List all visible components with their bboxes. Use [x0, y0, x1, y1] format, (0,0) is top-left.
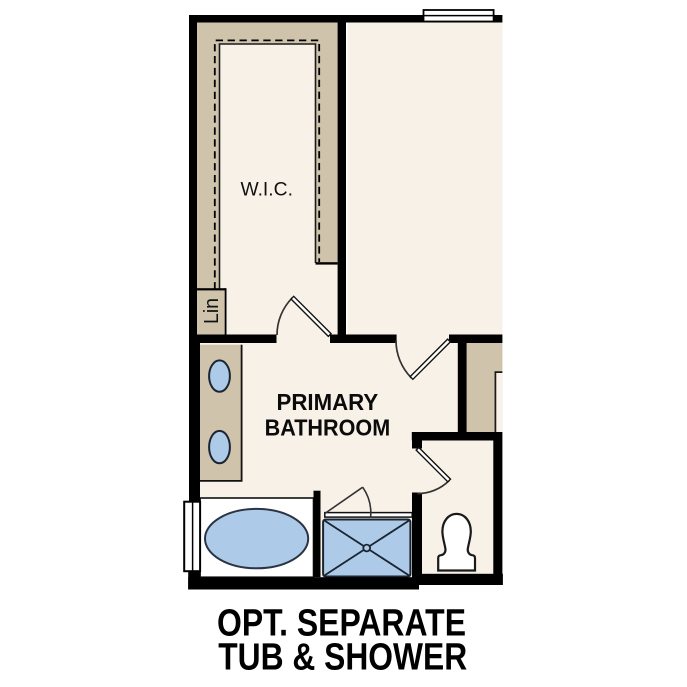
- svg-text:W.I.C.: W.I.C.: [240, 179, 293, 201]
- svg-text:BATHROOM: BATHROOM: [265, 414, 391, 440]
- svg-text:Lin: Lin: [201, 298, 223, 324]
- svg-text:PRIMARY: PRIMARY: [277, 389, 379, 415]
- svg-text:TUB & SHOWER: TUB & SHOWER: [218, 636, 467, 678]
